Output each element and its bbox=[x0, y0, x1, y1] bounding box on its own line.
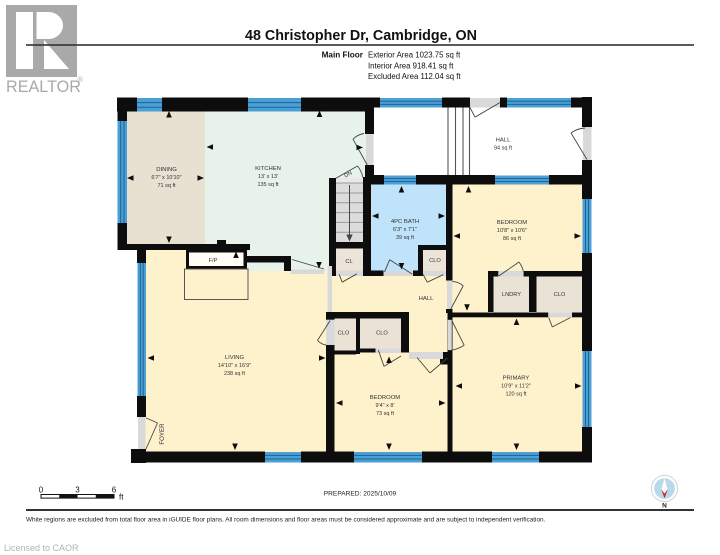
svg-text:DINING: DINING bbox=[156, 167, 177, 173]
svg-text:48 Christopher Dr, Cambridge,: 48 Christopher Dr, Cambridge, ON bbox=[245, 28, 477, 44]
svg-text:LNDRY: LNDRY bbox=[502, 292, 521, 298]
svg-text:FOYER: FOYER bbox=[159, 423, 166, 445]
svg-text:71 sq ft: 71 sq ft bbox=[157, 183, 176, 189]
svg-text:Main Floor: Main Floor bbox=[322, 51, 364, 60]
svg-text:ft: ft bbox=[119, 493, 124, 502]
svg-text:Excluded Area 112.04 sq ft: Excluded Area 112.04 sq ft bbox=[368, 72, 461, 81]
svg-text:120 sq ft: 120 sq ft bbox=[505, 392, 527, 398]
svg-text:BEDROOM: BEDROOM bbox=[370, 395, 401, 401]
svg-text:REALTOR: REALTOR bbox=[6, 78, 81, 96]
svg-text:®: ® bbox=[78, 75, 84, 84]
svg-text:6'3" x 7'1": 6'3" x 7'1" bbox=[393, 227, 417, 233]
svg-text:PREPARED: 2025/10/09: PREPARED: 2025/10/09 bbox=[324, 491, 397, 498]
svg-text:CL: CL bbox=[345, 259, 352, 265]
svg-text:3: 3 bbox=[75, 486, 80, 495]
svg-text:N: N bbox=[662, 503, 667, 510]
svg-text:KITCHEN: KITCHEN bbox=[255, 166, 281, 172]
svg-text:Exterior Area 1023.75 sq ft: Exterior Area 1023.75 sq ft bbox=[368, 51, 461, 60]
svg-text:BEDROOM: BEDROOM bbox=[497, 220, 528, 226]
svg-text:CLO: CLO bbox=[554, 292, 566, 298]
svg-text:13' x 13': 13' x 13' bbox=[258, 174, 278, 180]
svg-text:73 sq ft: 73 sq ft bbox=[376, 411, 395, 417]
svg-text:CLO: CLO bbox=[376, 331, 388, 337]
svg-text:6: 6 bbox=[112, 486, 117, 495]
svg-text:Interior Area 918.41 sq ft: Interior Area 918.41 sq ft bbox=[368, 61, 454, 70]
svg-text:10'9" x 11'2": 10'9" x 11'2" bbox=[501, 384, 531, 390]
svg-text:F/P: F/P bbox=[209, 258, 218, 264]
svg-text:CLO: CLO bbox=[338, 331, 350, 337]
svg-text:86 sq ft: 86 sq ft bbox=[503, 236, 522, 242]
svg-text:PRIMARY: PRIMARY bbox=[503, 376, 530, 382]
svg-text:0: 0 bbox=[39, 486, 44, 495]
svg-text:HALL: HALL bbox=[419, 296, 434, 302]
svg-text:238 sq ft: 238 sq ft bbox=[224, 371, 246, 377]
svg-text:CLO: CLO bbox=[429, 258, 441, 264]
svg-text:94 sq ft: 94 sq ft bbox=[494, 146, 513, 152]
svg-text:White regions are excluded fro: White regions are excluded from total fl… bbox=[26, 517, 546, 524]
svg-text:10'8" x 10'6": 10'8" x 10'6" bbox=[497, 228, 527, 234]
svg-text:14'10" x 16'9": 14'10" x 16'9" bbox=[218, 363, 251, 369]
svg-text:135 sq ft: 135 sq ft bbox=[257, 182, 279, 188]
svg-text:4PC BATH: 4PC BATH bbox=[391, 219, 419, 225]
svg-text:HALL: HALL bbox=[496, 138, 511, 144]
svg-text:Licensed to CAOR: Licensed to CAOR bbox=[4, 543, 79, 553]
svg-text:9'4" x 8': 9'4" x 8' bbox=[375, 403, 394, 409]
svg-text:LIVING: LIVING bbox=[225, 355, 245, 361]
svg-text:6'7" x 10'10": 6'7" x 10'10" bbox=[151, 175, 181, 181]
svg-text:39 sq ft: 39 sq ft bbox=[396, 235, 415, 241]
